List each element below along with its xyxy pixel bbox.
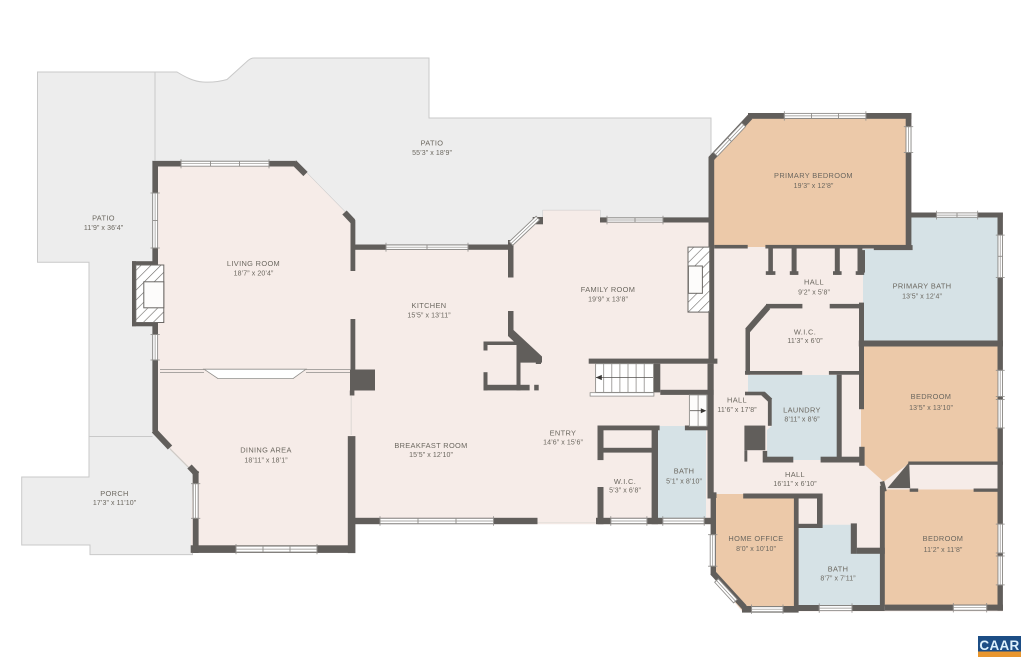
svg-text:19’3” x 12’8”: 19’3” x 12’8”: [794, 183, 834, 190]
svg-text:FAMILY ROOM: FAMILY ROOM: [581, 285, 636, 294]
svg-text:DINING AREA: DINING AREA: [240, 446, 292, 455]
svg-text:BREAKFAST ROOM: BREAKFAST ROOM: [394, 441, 467, 450]
svg-text:PRIMARY BEDROOM: PRIMARY BEDROOM: [774, 171, 853, 180]
svg-text:HALL: HALL: [785, 470, 805, 479]
svg-text:18’11” x 18’1”: 18’11” x 18’1”: [244, 458, 288, 465]
svg-text:15’5” x 12’10”: 15’5” x 12’10”: [409, 452, 453, 459]
svg-text:17’3” x 11’10”: 17’3” x 11’10”: [93, 500, 137, 507]
svg-text:BATH: BATH: [828, 565, 849, 574]
svg-text:5’3” x 6’8”: 5’3” x 6’8”: [609, 488, 641, 495]
svg-text:PRIMARY BATH: PRIMARY BATH: [893, 282, 952, 291]
svg-text:ENTRY: ENTRY: [550, 428, 577, 437]
svg-text:LIVING ROOM: LIVING ROOM: [227, 259, 280, 268]
svg-text:PATIO: PATIO: [421, 139, 444, 148]
svg-text:BEDROOM: BEDROOM: [923, 534, 964, 543]
svg-text:HALL: HALL: [804, 278, 824, 287]
svg-text:55’3” x 18’9”: 55’3” x 18’9”: [412, 150, 452, 157]
svg-text:18’7” x 20’4”: 18’7” x 20’4”: [234, 271, 274, 278]
svg-text:13’5” x 12’4”: 13’5” x 12’4”: [902, 294, 942, 301]
svg-text:9’2” x 5’8”: 9’2” x 5’8”: [798, 290, 830, 297]
svg-text:8’11” x 8’6”: 8’11” x 8’6”: [784, 417, 820, 424]
svg-text:11’9” x 36’4”: 11’9” x 36’4”: [84, 225, 124, 232]
svg-text:15’5” x 13’11”: 15’5” x 13’11”: [407, 313, 451, 320]
svg-text:KITCHEN: KITCHEN: [412, 301, 447, 310]
svg-text:14’6” x 15’6”: 14’6” x 15’6”: [543, 440, 583, 447]
svg-text:HALL: HALL: [727, 396, 747, 405]
svg-text:LAUNDRY: LAUNDRY: [783, 406, 821, 415]
svg-text:PATIO: PATIO: [92, 214, 115, 223]
svg-text:W.I.C.: W.I.C.: [614, 477, 636, 486]
svg-text:5’1” x 8’10”: 5’1” x 8’10”: [666, 479, 702, 486]
svg-text:BATH: BATH: [674, 467, 695, 476]
svg-text:11’3” x 6’0”: 11’3” x 6’0”: [787, 338, 823, 345]
svg-text:19’9” x 13’8”: 19’9” x 13’8”: [588, 297, 628, 304]
svg-text:16’11” x 6’10”: 16’11” x 6’10”: [773, 481, 817, 488]
svg-text:13’5” x 13’10”: 13’5” x 13’10”: [909, 405, 953, 412]
svg-text:W.I.C.: W.I.C.: [794, 328, 816, 337]
svg-text:BEDROOM: BEDROOM: [911, 392, 952, 401]
svg-text:11’2” x 11’8”: 11’2” x 11’8”: [924, 547, 963, 554]
svg-text:HOME OFFICE: HOME OFFICE: [728, 534, 783, 543]
svg-text:8’7” x 7’11”: 8’7” x 7’11”: [820, 576, 856, 583]
svg-text:PORCH: PORCH: [100, 489, 128, 498]
svg-text:11’6” x 17’8”: 11’6” x 17’8”: [717, 407, 757, 414]
svg-text:8’0” x 10’10”: 8’0” x 10’10”: [736, 546, 776, 553]
svg-text:CAAR: CAAR: [979, 638, 1019, 653]
